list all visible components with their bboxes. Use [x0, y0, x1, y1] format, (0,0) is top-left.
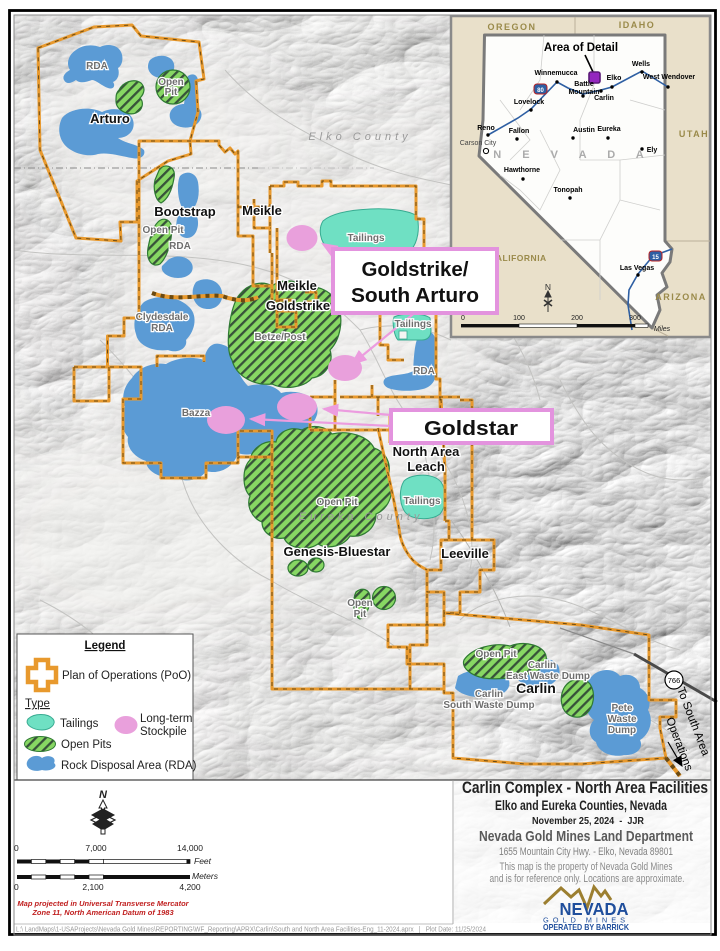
svg-text:Pit: Pit — [165, 87, 178, 98]
svg-text:Goldstar: Goldstar — [424, 418, 518, 440]
svg-text:Wells: Wells — [632, 61, 650, 68]
svg-text:Open Pit: Open Pit — [142, 225, 184, 236]
svg-text:North Area: North Area — [393, 444, 460, 459]
svg-text:Goldstrike: Goldstrike — [266, 298, 330, 313]
svg-text:4,200: 4,200 — [179, 882, 201, 892]
svg-text:Bootstrap: Bootstrap — [154, 204, 215, 219]
svg-text:Type: Type — [25, 698, 50, 710]
svg-text:ARIZONA: ARIZONA — [655, 292, 707, 302]
svg-text:Legend: Legend — [85, 640, 126, 652]
svg-text:Meikle: Meikle — [277, 278, 317, 293]
svg-text:and is for reference only. Loc: and is for reference only. Locations are… — [490, 873, 685, 885]
svg-text:Elko: Elko — [607, 75, 622, 82]
svg-text:Betze/Post: Betze/Post — [254, 332, 306, 343]
svg-text:Carlin: Carlin — [516, 680, 556, 696]
svg-text:Carlin Complex - North Area Fa: Carlin Complex - North Area Facilities — [462, 778, 708, 797]
svg-text:0: 0 — [14, 882, 19, 892]
svg-text:15: 15 — [652, 255, 659, 261]
svg-text:N E V A D A: N E V A D A — [493, 149, 653, 161]
svg-text:Austin: Austin — [573, 127, 595, 134]
svg-text:Genesis-Bluestar: Genesis-Bluestar — [284, 544, 391, 559]
svg-text:N: N — [99, 789, 108, 801]
svg-text:L:\ LandMaps\1-USAProjects\Nev: L:\ LandMaps\1-USAProjects\Nevada Gold M… — [16, 927, 486, 934]
svg-text:Leach: Leach — [407, 459, 445, 474]
svg-text:South Waste Dump: South Waste Dump — [443, 700, 534, 711]
svg-text:Waste: Waste — [607, 714, 637, 725]
svg-text:Fallon: Fallon — [509, 128, 530, 135]
svg-text:100: 100 — [513, 315, 525, 322]
svg-text:Plan of Operations (PoO): Plan of Operations (PoO) — [62, 670, 191, 682]
svg-text:Hawthorne: Hawthorne — [504, 167, 540, 174]
svg-text:Eureka: Eureka — [597, 126, 620, 133]
svg-text:Arturo: Arturo — [90, 111, 130, 126]
svg-text:Area of Detail: Area of Detail — [544, 42, 618, 54]
svg-text:Tonopah: Tonopah — [553, 187, 582, 194]
svg-text:Elko County: Elko County — [308, 131, 411, 143]
svg-text:300: 300 — [629, 315, 641, 322]
svg-text:Carlin: Carlin — [475, 689, 503, 700]
svg-text:RDA: RDA — [413, 366, 435, 377]
svg-text:RDA: RDA — [169, 241, 191, 252]
svg-text:Open Pit: Open Pit — [475, 649, 517, 660]
svg-text:Long-term: Long-term — [140, 713, 192, 725]
svg-text:Leeville: Leeville — [441, 546, 489, 561]
svg-text:Open Pit: Open Pit — [316, 497, 358, 508]
svg-text:Nevada Gold Mines Land Departm: Nevada Gold Mines Land Department — [479, 828, 693, 845]
svg-text:1655 Mountain City Hwy. - Elko: 1655 Mountain City Hwy. - Elko, Nevada 8… — [499, 846, 673, 858]
svg-text:80: 80 — [537, 88, 544, 94]
svg-text:Tailings: Tailings — [60, 718, 99, 730]
svg-text:RDA: RDA — [86, 61, 108, 72]
svg-text:Rock Disposal Area (RDA): Rock Disposal Area (RDA) — [61, 760, 197, 772]
svg-text:Battle: Battle — [574, 81, 594, 88]
svg-text:Open Pits: Open Pits — [61, 739, 112, 751]
svg-text:Feet: Feet — [194, 856, 212, 866]
svg-text:OPERATED BY BARRICK: OPERATED BY BARRICK — [543, 922, 630, 932]
svg-text:Pete: Pete — [611, 703, 633, 714]
svg-text:OREGON: OREGON — [487, 22, 536, 32]
svg-text:Eureka County: Eureka County — [299, 511, 424, 523]
svg-text:Reno: Reno — [477, 125, 495, 132]
svg-text:766: 766 — [668, 676, 681, 685]
svg-text:RDA: RDA — [151, 323, 173, 334]
svg-text:November 25, 2024 - JJR: November 25, 2024 - JJR — [532, 815, 644, 827]
svg-text:200: 200 — [571, 315, 583, 322]
svg-text:Open: Open — [347, 598, 373, 609]
svg-text:This map is the property of Ne: This map is the property of Nevada Gold … — [500, 861, 673, 873]
svg-text:Carlin: Carlin — [594, 95, 614, 102]
svg-text:Ely: Ely — [647, 147, 658, 154]
svg-text:Stockpile: Stockpile — [140, 726, 187, 738]
svg-text:Meikle: Meikle — [242, 203, 282, 218]
svg-text:Miles: Miles — [654, 326, 671, 333]
svg-text:0: 0 — [461, 315, 465, 322]
svg-text:Tailings: Tailings — [394, 319, 431, 330]
svg-text:Bazza: Bazza — [182, 408, 211, 419]
svg-text:Zone 11, North American Datum: Zone 11, North American Datum of 1983 — [31, 908, 174, 917]
svg-text:2,100: 2,100 — [82, 882, 104, 892]
svg-text:Elko and Eureka Counties, Neva: Elko and Eureka Counties, Nevada — [495, 797, 667, 813]
svg-text:7,000: 7,000 — [85, 843, 107, 853]
svg-text:Lovelock: Lovelock — [514, 99, 544, 106]
svg-text:Dump: Dump — [608, 725, 636, 736]
svg-text:Map projected in Universal Tra: Map projected in Universal Transverse Me… — [17, 899, 189, 908]
svg-text:Clydesdale: Clydesdale — [136, 312, 189, 323]
svg-text:Tailings: Tailings — [403, 496, 440, 507]
svg-text:Pit: Pit — [354, 609, 367, 620]
svg-text:0: 0 — [14, 843, 19, 853]
svg-text:UTAH: UTAH — [679, 129, 709, 139]
svg-text:Carlin: Carlin — [528, 660, 556, 671]
svg-text:South Arturo: South Arturo — [351, 285, 479, 307]
svg-text:Goldstrike/: Goldstrike/ — [362, 259, 469, 281]
svg-text:Meters: Meters — [192, 871, 219, 881]
svg-text:Tailings: Tailings — [347, 233, 384, 244]
svg-text:Las Vegas: Las Vegas — [620, 265, 654, 272]
svg-text:Winnemucca: Winnemucca — [534, 70, 577, 77]
svg-text:Carson City: Carson City — [460, 140, 497, 147]
svg-text:West Wendover: West Wendover — [643, 74, 696, 81]
svg-text:14,000: 14,000 — [177, 843, 203, 853]
svg-text:IDAHO: IDAHO — [619, 20, 656, 30]
